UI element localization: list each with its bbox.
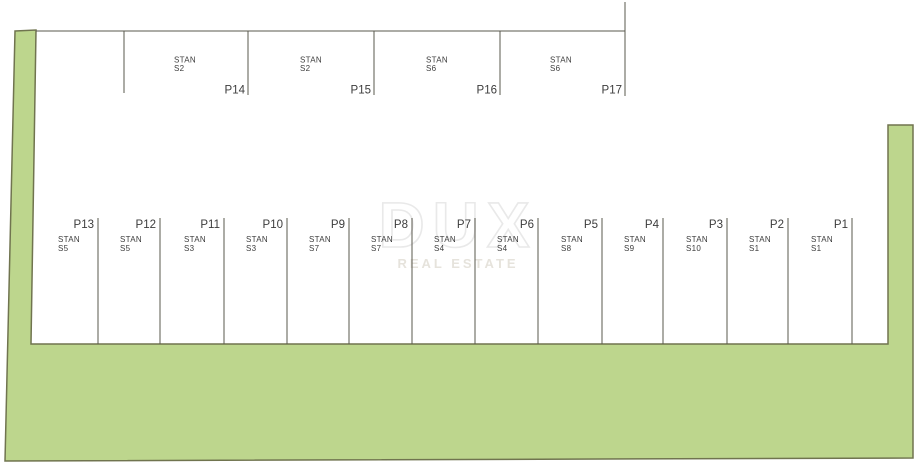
stall-number-label: P1 (834, 219, 848, 231)
stall-stan-label: STAN (434, 235, 456, 244)
parking-site-plan: DUX REAL ESTATE STAN S2 P14 STAN (0, 0, 919, 468)
stall-unit-label: S6 (550, 64, 561, 73)
stall-unit-label: S4 (497, 244, 508, 253)
watermark-tagline: REAL ESTATE (397, 256, 518, 271)
stall-number-label: P6 (520, 219, 534, 231)
stall-unit-label: S2 (300, 64, 311, 73)
stall-number-label: P5 (584, 219, 598, 231)
stall-stan-label: STAN (686, 235, 708, 244)
stall-number-label: P7 (457, 219, 471, 231)
stall-number-label: P4 (645, 219, 660, 231)
stall-stan-label: STAN (246, 235, 268, 244)
stall-unit-label: S5 (120, 244, 131, 253)
stall-stan-label: STAN (749, 235, 771, 244)
stall-unit-label: S3 (246, 244, 257, 253)
stall-number-label: P12 (136, 219, 156, 231)
stall-number-label: P14 (225, 85, 246, 97)
stall-number-label: P16 (477, 85, 497, 97)
stall-stan-label: STAN (309, 235, 331, 244)
stall-number-label: P13 (74, 219, 94, 231)
stall-stan-label: STAN (561, 235, 583, 244)
stall-number-label: P8 (394, 219, 408, 231)
stall-unit-label: S1 (749, 244, 760, 253)
stall-number-label: P3 (709, 219, 723, 231)
stall-unit-label: S10 (686, 244, 701, 253)
stall-unit-label: S6 (426, 64, 437, 73)
stall-stan-label: STAN (120, 235, 142, 244)
stall-stan-label: STAN (371, 235, 393, 244)
stall-number-label: P11 (200, 219, 220, 231)
stall-unit-label: S9 (624, 244, 635, 253)
stall-unit-label: S8 (561, 244, 572, 253)
stall-unit-label: S1 (811, 244, 822, 253)
stall-stan-label: STAN (497, 235, 519, 244)
stall-unit-label: S5 (58, 244, 69, 253)
stall-stan-label: STAN (58, 235, 80, 244)
stall-unit-label: S7 (371, 244, 382, 253)
stall-unit-label: S4 (434, 244, 445, 253)
stall-unit-label: S7 (309, 244, 320, 253)
stall-stan-label: STAN (624, 235, 646, 244)
stall-number-label: P15 (351, 85, 371, 97)
stall-unit-label: S2 (174, 64, 185, 73)
stall-stan-label: STAN (811, 235, 833, 244)
stall-number-label: P10 (263, 219, 283, 231)
stall-number-label: P9 (331, 219, 345, 231)
stall-stan-label: STAN (184, 235, 206, 244)
stall-number-label: P2 (770, 219, 784, 231)
stall-unit-label: S3 (184, 244, 195, 253)
stall-number-label: P17 (602, 85, 622, 97)
